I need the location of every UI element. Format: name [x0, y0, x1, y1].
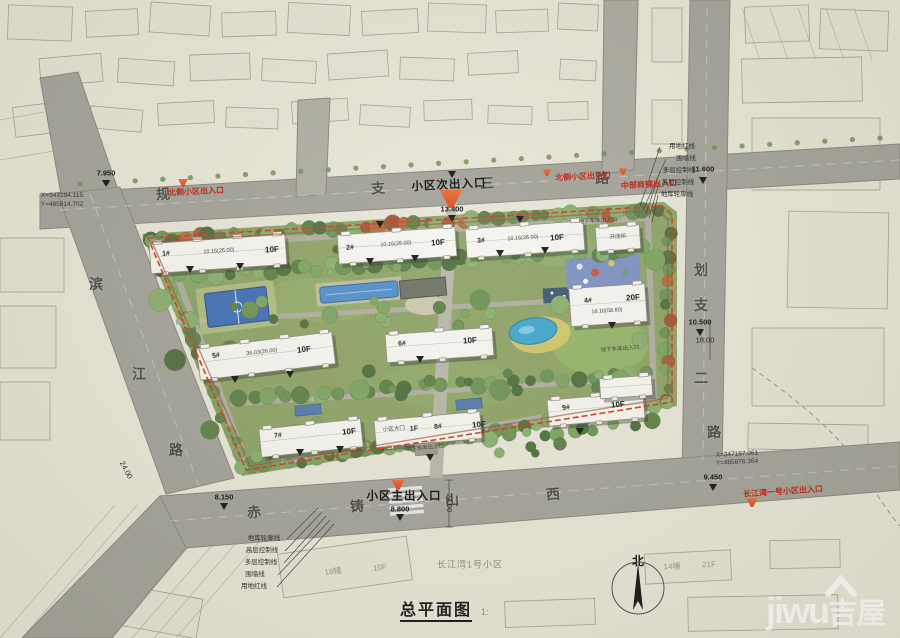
site-plan-canvas: 规支三路划支二滨江路赤铸山西路北侧小区出入口北侧小区出入口中部商铺出入口长江湾一…: [0, 0, 900, 638]
site-plan-drawing: [0, 0, 900, 638]
jiwu-watermark: jiwu吉屋: [766, 590, 886, 632]
amenity-pergola: [399, 277, 446, 299]
north-arrow: 北: [605, 552, 671, 632]
watermark-brand-cn: 吉屋: [828, 598, 886, 630]
watermark-brand: jiwu: [766, 590, 828, 631]
road-stub-center: [602, 0, 638, 174]
north-arrow-icon: [605, 552, 671, 618]
drawing-title: 总平面图: [400, 602, 472, 622]
jiwu-house-icon: [824, 574, 858, 598]
road-east: [682, 0, 730, 476]
drawing-scale: 1:: [481, 607, 489, 617]
road-stub-secondary: [296, 98, 330, 197]
drawing-title-block: 总平面图1:: [400, 596, 489, 620]
